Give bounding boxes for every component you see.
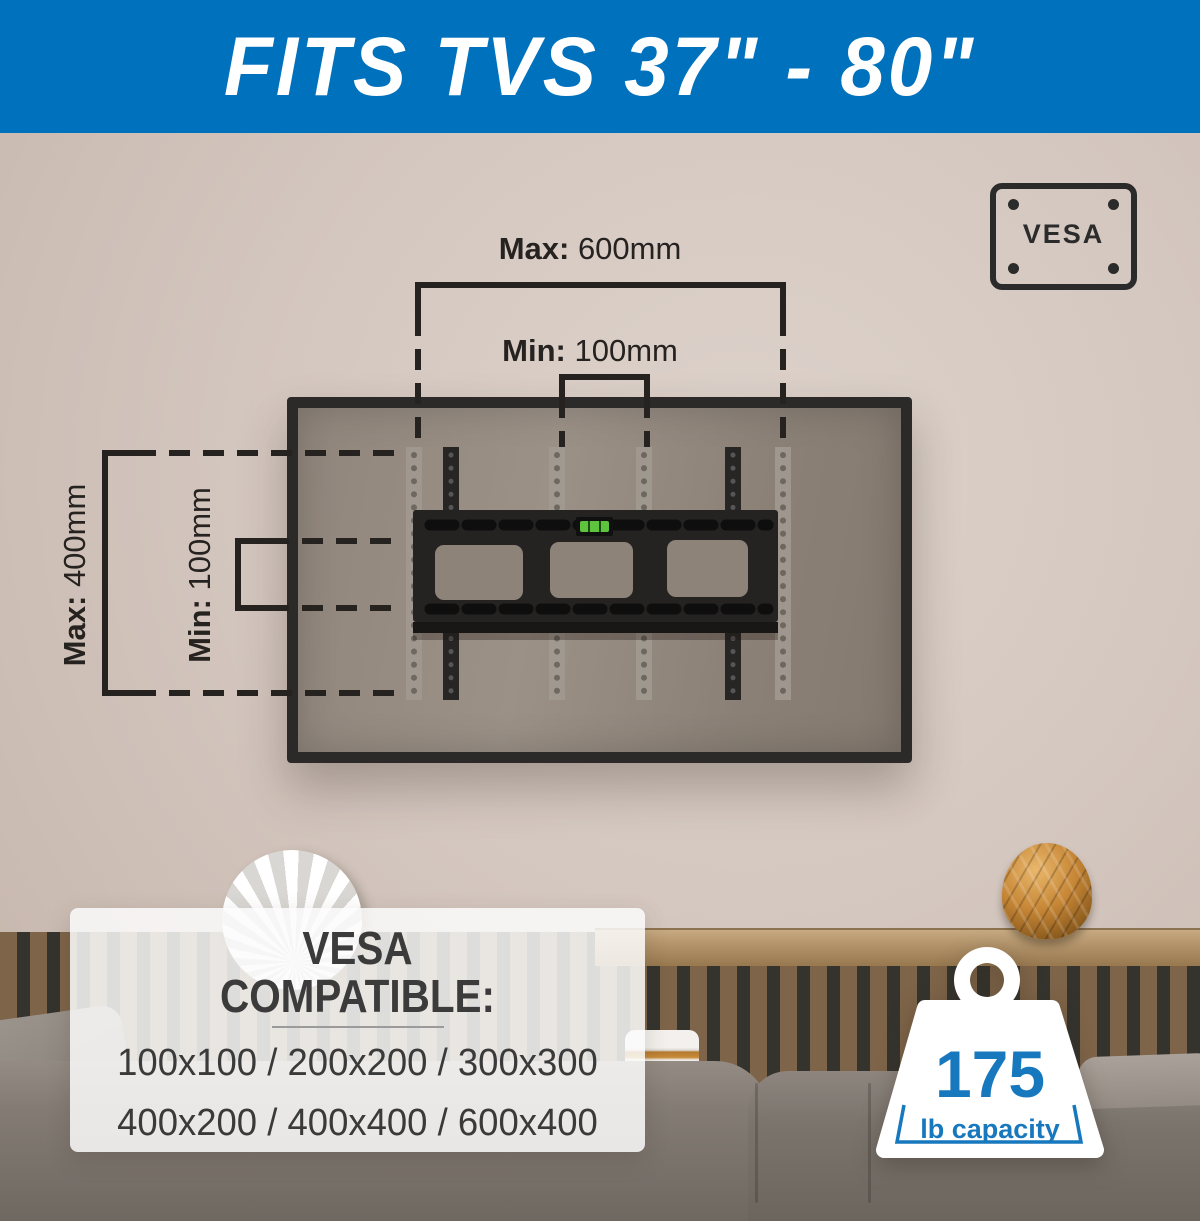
weight-capacity-icon: 175 lb capacity (870, 945, 1110, 1185)
label-min-100mm-left-value: 100mm (182, 487, 217, 599)
label-min-100mm-left: Min: 100mm (183, 480, 217, 670)
dimension-bracket-max-400 (105, 453, 406, 693)
fits-tvs-banner: FITS TVS 37" - 80" (0, 0, 1200, 133)
vesa-sizes-row2: 400x200 / 400x400 / 600x400 (82, 1102, 634, 1145)
heading-underline (272, 1026, 444, 1028)
label-max-400mm: Max: 400mm (58, 480, 92, 670)
label-max-600mm-value: 600mm (569, 231, 681, 266)
label-max-400mm-prefix: Max: (57, 596, 92, 667)
banner-title: FITS TVS 37" - 80" (224, 19, 976, 115)
panel-heading-line2: COMPATIBLE: (105, 972, 611, 1020)
panel-heading: VESA COMPATIBLE: (105, 924, 611, 1020)
label-min-100mm-top-prefix: Min: (502, 333, 566, 368)
label-max-400mm-value: 400mm (57, 484, 92, 596)
label-max-600mm-prefix: Max: (499, 231, 570, 266)
bubble-level-icon (576, 517, 613, 536)
label-max-600mm: Max: 600mm (440, 231, 740, 267)
label-min-100mm-left-prefix: Min: (182, 599, 217, 663)
dimension-bracket-min-100-top (562, 377, 647, 447)
living-room-scene: VESA (0, 133, 1200, 1200)
capacity-unit: lb capacity (920, 1114, 1060, 1144)
capacity-value: 175 (935, 1037, 1045, 1111)
dimension-bracket-min-100-left (238, 541, 398, 608)
panel-heading-line1: VESA (105, 924, 611, 972)
vesa-compatible-panel: VESA COMPATIBLE: 100x100 / 200x200 / 300… (70, 908, 645, 1152)
label-min-100mm-top-value: 100mm (566, 333, 678, 368)
vesa-sizes-row1: 100x100 / 200x200 / 300x300 (82, 1042, 634, 1085)
label-min-100mm-top: Min: 100mm (440, 333, 740, 369)
wall-plate (413, 510, 778, 640)
